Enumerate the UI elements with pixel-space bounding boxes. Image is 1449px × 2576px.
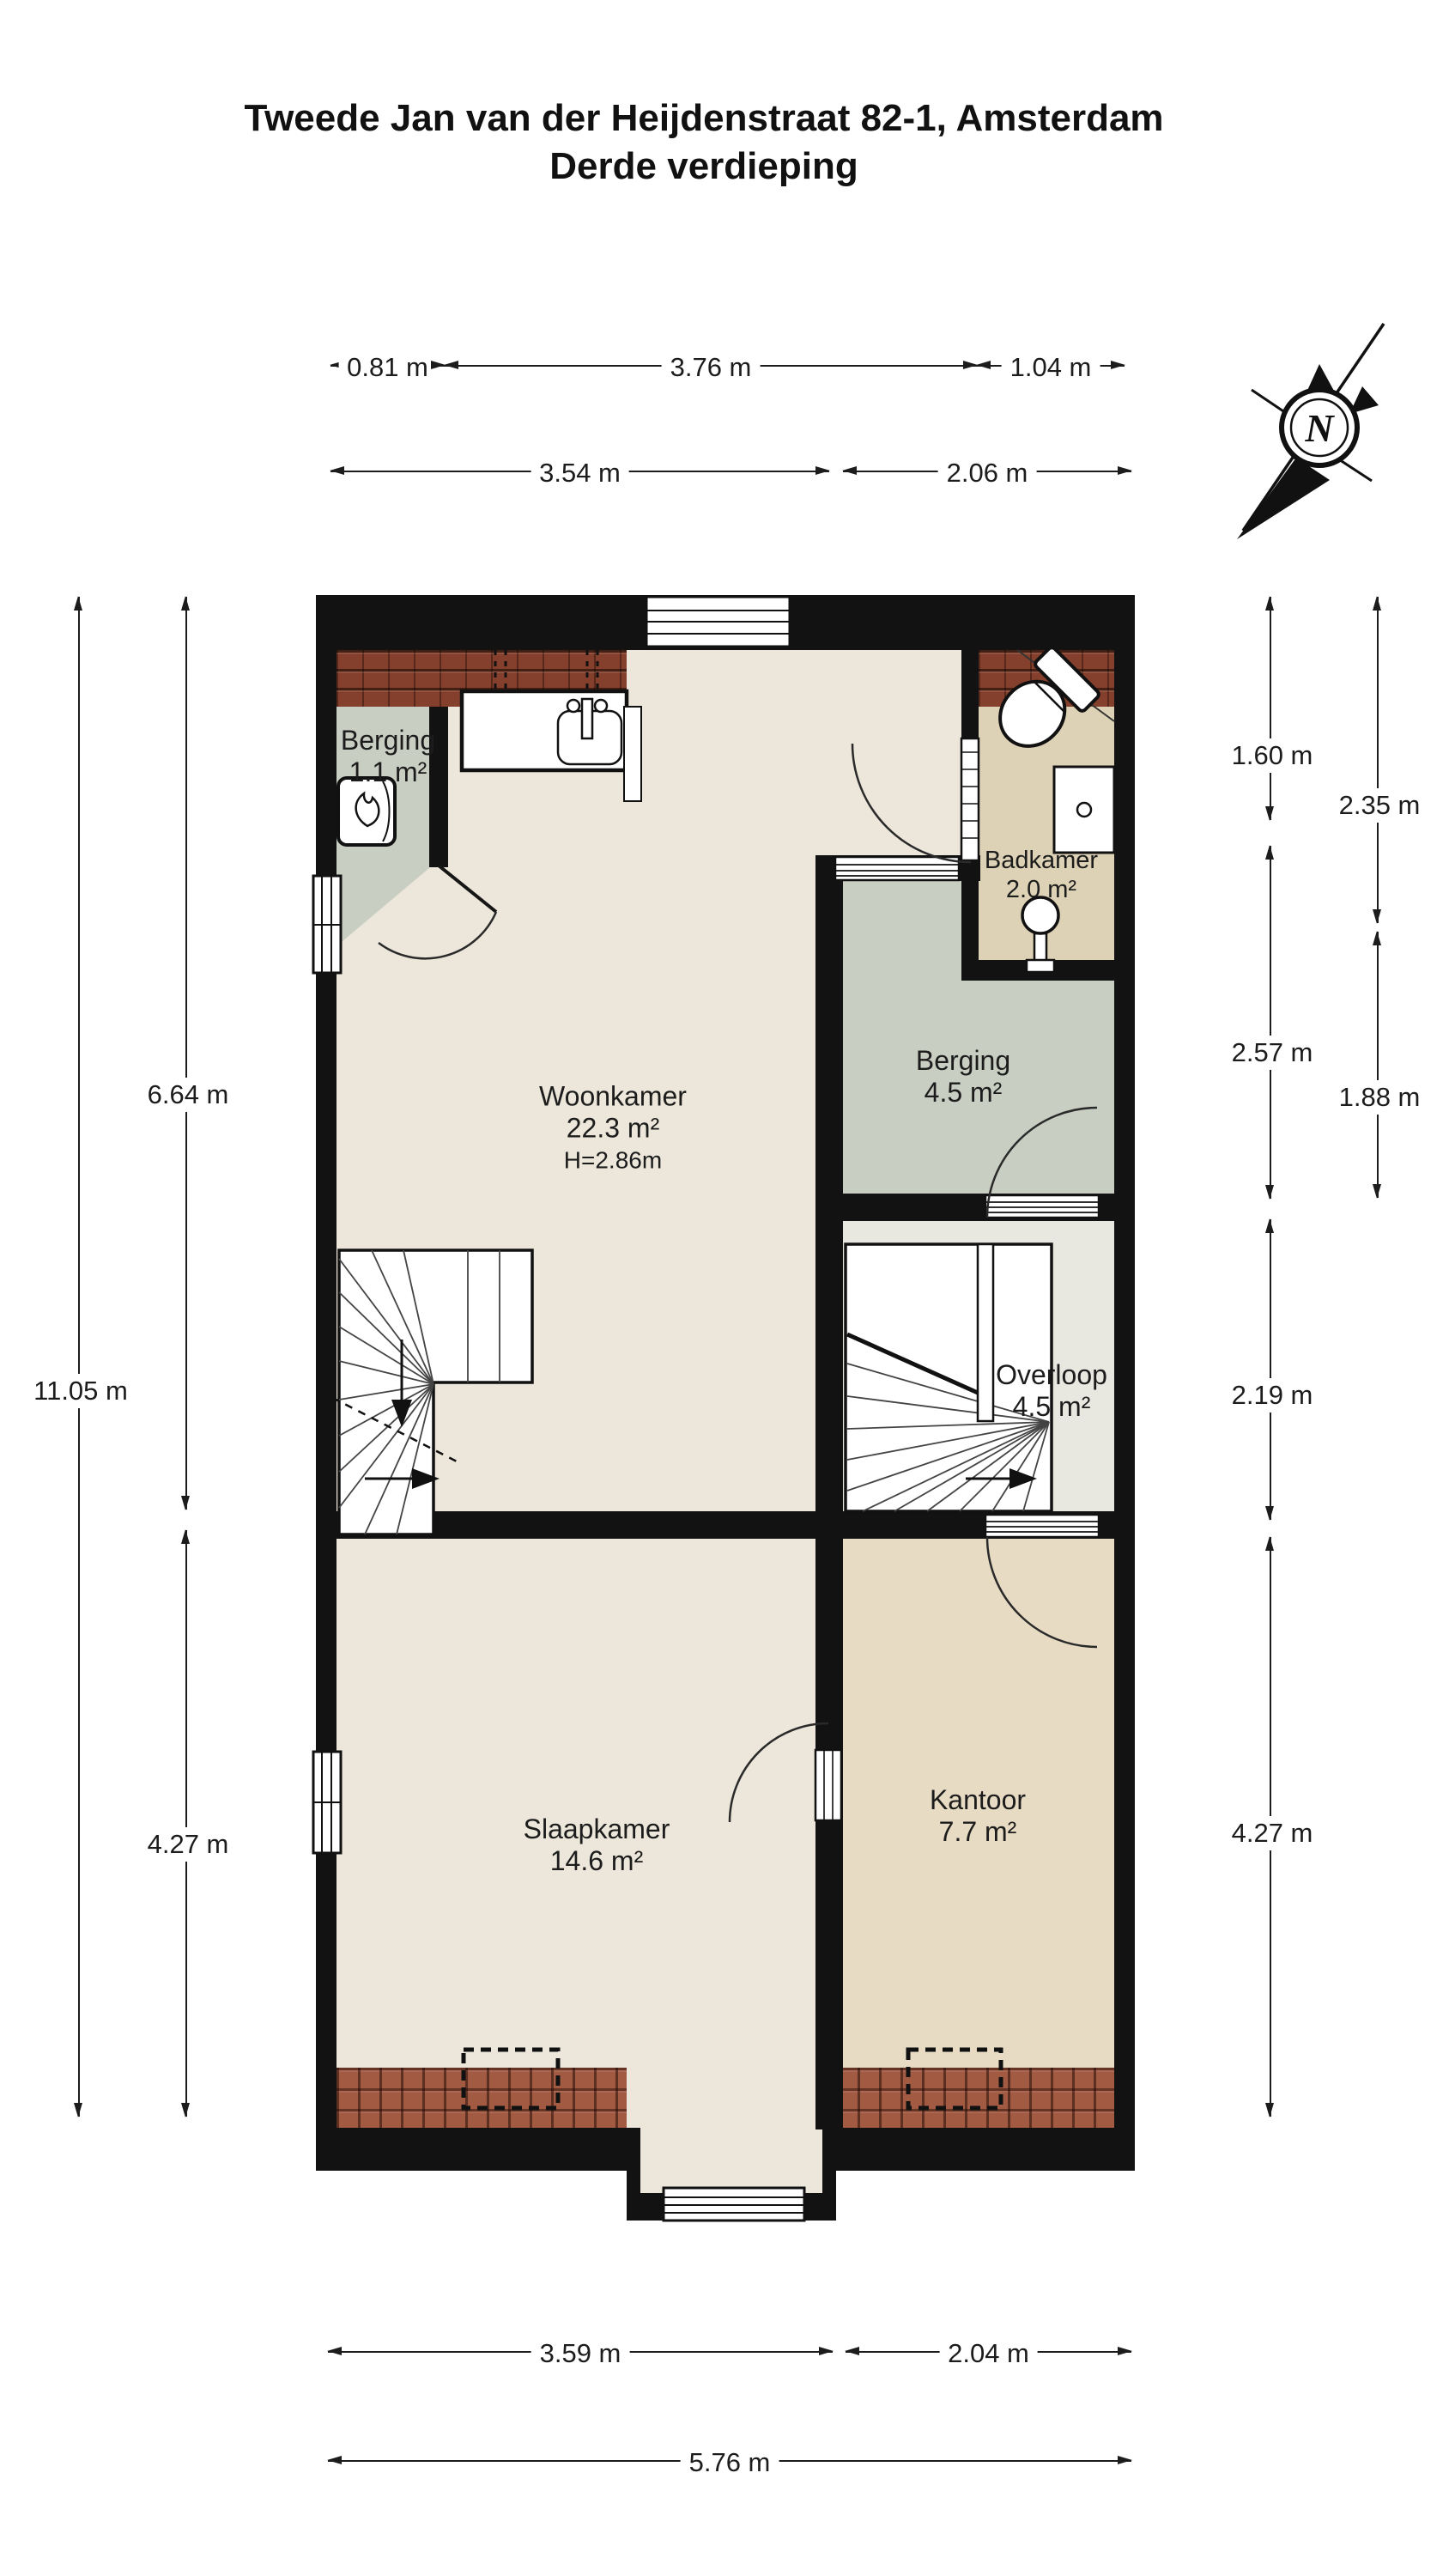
- interior-window: [835, 857, 959, 880]
- dimension-right: 2.57 m: [1270, 846, 1271, 1199]
- room-label-woonkamer: Woonkamer22.3 m² H=2.86m: [539, 1081, 687, 1176]
- dimension-right: 2.19 m: [1270, 1219, 1271, 1520]
- dimension-bottom: 2.04 m: [846, 2351, 1131, 2353]
- room-label-kantoor: Kantoor7.7 m²: [930, 1784, 1026, 1848]
- dimension-left: 11.05 m: [78, 597, 80, 2117]
- room-label-berging: Berging4.5 m²: [916, 1045, 1010, 1109]
- skylight-outline: [464, 2050, 558, 2108]
- berging-klein-door: [336, 866, 496, 958]
- floorplan-page: Tweede Jan van der Heijdenstraat 82-1, A…: [0, 0, 1449, 2576]
- dimension-right: 1.88 m: [1377, 932, 1379, 1198]
- wall-pier: [624, 707, 641, 801]
- window: [664, 2188, 804, 2221]
- dimension-top: 1.04 m: [977, 365, 1125, 367]
- dimension-left: 6.64 m: [185, 597, 187, 1510]
- dimension-right: 1.60 m: [1270, 597, 1271, 820]
- skylight-outline: [908, 2050, 1001, 2108]
- dimension-left: 4.27 m: [185, 1530, 187, 2117]
- window: [313, 876, 341, 973]
- stairs-woonkamer: [319, 1250, 532, 1534]
- window: [646, 597, 790, 647]
- compass-icon: N: [1237, 324, 1384, 539]
- toilet-icon: [984, 646, 1100, 762]
- dimension-top: 2.06 m: [843, 471, 1131, 472]
- dimension-bottom: 3.59 m: [328, 2351, 833, 2353]
- room-label-berging-klein: Berging1.1 m²: [341, 725, 435, 788]
- door-slaapkamer: [730, 1723, 841, 1822]
- room-label-badkamer: Badkamer2.0 m²: [985, 846, 1098, 904]
- door-kantoor: [985, 1515, 1099, 1647]
- dimension-top: 3.76 m: [445, 365, 977, 367]
- room-label-overloop: Overloop4.5 m²: [996, 1359, 1107, 1423]
- plan-overlay: N: [0, 0, 1449, 2576]
- room-label-slaapkamer: Slaapkamer14.6 m²: [524, 1814, 670, 1877]
- dimension-top: 3.54 m: [330, 471, 829, 472]
- dimension-right: 4.27 m: [1270, 1537, 1271, 2117]
- door-badkamer: [852, 738, 979, 862]
- dimension-right: 2.35 m: [1377, 597, 1379, 923]
- sink-icon: [1022, 897, 1058, 972]
- window: [313, 1752, 341, 1853]
- kitchen-counter-icon: [462, 691, 627, 770]
- compass-north-label: N: [1304, 406, 1335, 450]
- shower-icon: [1054, 767, 1114, 853]
- door-berging: [985, 1108, 1099, 1218]
- dimension-top: 0.81 m: [330, 365, 445, 367]
- dimension-bottom: 5.76 m: [328, 2460, 1131, 2462]
